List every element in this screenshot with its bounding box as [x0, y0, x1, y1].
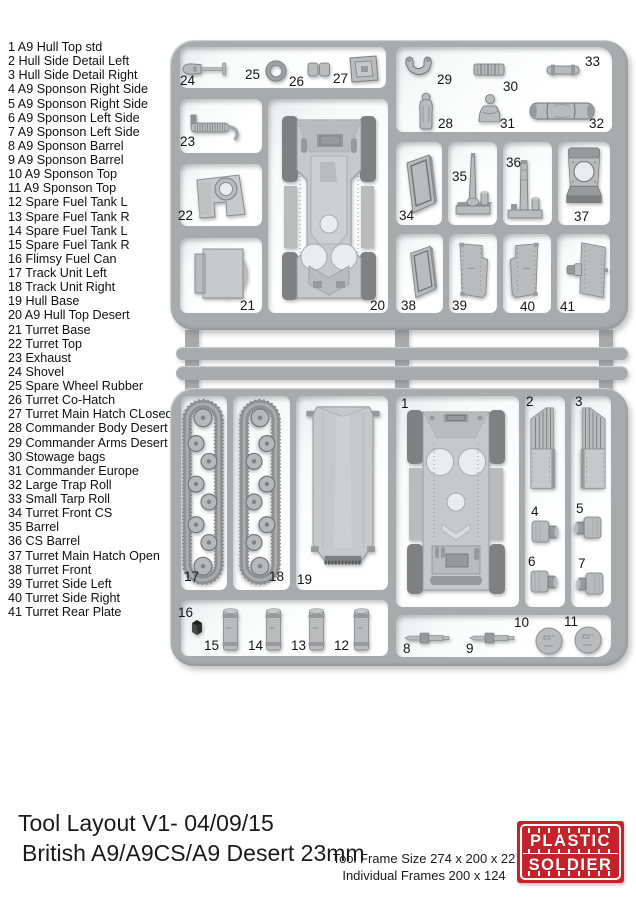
part-38-graphic [407, 243, 439, 301]
part-number-14: 14 [248, 639, 263, 653]
part-number-6: 6 [528, 555, 536, 569]
part-number-5: 5 [576, 502, 584, 516]
part-number-21: 21 [240, 299, 255, 313]
parts-list-item: 1 A9 Hull Top std [8, 40, 173, 54]
part-number-18: 18 [269, 570, 284, 584]
part-number-34: 34 [399, 209, 414, 223]
part-20-graphic [280, 108, 378, 306]
part-number-28: 28 [438, 117, 453, 131]
part-8-graphic [404, 631, 450, 645]
parts-list-item: 24 Shovel [8, 365, 173, 379]
part-number-38: 38 [401, 299, 416, 313]
parts-list-item: 14 Spare Fuel Tank L [8, 224, 173, 238]
parts-list-item: 15 Spare Fuel Tank R [8, 238, 173, 252]
part-number-11: 11 [564, 615, 578, 629]
part-39-graphic [453, 241, 493, 303]
part-25-graphic [264, 60, 288, 82]
parts-list-item: 10 A9 Sponson Top [8, 167, 173, 181]
parts-list-item: 40 Turret Side Right [8, 591, 173, 605]
part-number-39: 39 [452, 299, 467, 313]
part-5-graphic [574, 516, 602, 540]
parts-list-item: 3 Hull Side Detail Right [8, 68, 173, 82]
part-29-graphic [404, 54, 434, 80]
part-40-graphic [505, 241, 545, 303]
part-18-graphic [238, 399, 282, 585]
parts-list-item: 35 Barrel [8, 520, 173, 534]
part-number-10: 10 [514, 616, 529, 630]
part-number-8: 8 [403, 642, 411, 656]
plastic-soldier-logo: PLASTIC SOLDIER [517, 821, 624, 883]
part-number-23: 23 [180, 135, 195, 149]
parts-list-item: 36 CS Barrel [8, 534, 173, 548]
parts-list-item: 6 A9 Sponson Left Side [8, 111, 173, 125]
part-number-30: 30 [503, 80, 518, 94]
part-7-graphic [576, 572, 604, 596]
part-number-19: 19 [297, 573, 312, 587]
part-31-graphic [475, 94, 503, 122]
part-41-graphic [565, 241, 611, 303]
part-number-2: 2 [526, 395, 534, 409]
parts-list-item: 2 Hull Side Detail Left [8, 54, 173, 68]
part-number-25: 25 [245, 68, 260, 82]
part-number-36: 36 [506, 156, 521, 170]
tool-layout-sheet: 1 A9 Hull Top std2 Hull Side Detail Left… [0, 0, 636, 900]
runner-bar-bottom [176, 366, 628, 380]
parts-list-item: 8 A9 Sponson Barrel [8, 139, 173, 153]
parts-list-item: 31 Commander Europe [8, 464, 173, 478]
parts-list-item: 20 A9 Hull Top Desert [8, 308, 173, 322]
runner-stub-left [185, 330, 199, 394]
part-number-13: 13 [291, 639, 306, 653]
part-26-graphic [307, 62, 331, 77]
part-number-3: 3 [575, 395, 583, 409]
part-number-17: 17 [184, 570, 199, 584]
parts-list-item: 39 Turret Side Left [8, 577, 173, 591]
footer-title-line2: British A9/A9CS/A9 Desert 23mm [22, 840, 365, 866]
part-17-graphic [181, 399, 225, 585]
part-11-graphic [574, 626, 602, 654]
part-12-graphic [353, 607, 370, 653]
parts-list-item: 18 Track Unit Right [8, 280, 173, 294]
part-30-graphic [473, 62, 505, 77]
parts-list-item: 34 Turret Front CS [8, 506, 173, 520]
part-10-graphic [535, 627, 563, 655]
part-number-40: 40 [520, 300, 535, 314]
part-number-29: 29 [437, 73, 452, 87]
part-number-31: 31 [500, 117, 515, 131]
part-13-graphic [308, 607, 325, 653]
parts-list-item: 21 Turret Base [8, 323, 173, 337]
runner-stub-right [599, 330, 613, 394]
parts-list-item: 17 Track Unit Left [8, 266, 173, 280]
parts-list: 1 A9 Hull Top std2 Hull Side Detail Left… [8, 40, 173, 619]
part-number-4: 4 [531, 505, 539, 519]
part-15-graphic [222, 607, 239, 653]
part-33-graphic [545, 63, 581, 77]
parts-list-item: 7 A9 Sponson Left Side [8, 125, 173, 139]
part-21-graphic [191, 247, 249, 301]
part-number-24: 24 [180, 74, 195, 88]
part-number-33: 33 [585, 55, 600, 69]
parts-list-item: 37 Turret Main Hatch Open [8, 549, 173, 563]
parts-list-item: 25 Spare Wheel Rubber [8, 379, 173, 393]
part-number-32: 32 [589, 117, 604, 131]
parts-list-item: 13 Spare Fuel Tank R [8, 210, 173, 224]
parts-list-item: 38 Turret Front [8, 563, 173, 577]
part-19-graphic [300, 403, 386, 581]
individual-frames-text: Individual Frames 200 x 124 [330, 869, 518, 882]
parts-list-item: 4 A9 Sponson Right Side [8, 82, 173, 96]
parts-list-item: 9 A9 Sponson Barrel [8, 153, 173, 167]
part-34-graphic [403, 153, 439, 215]
part-number-27: 27 [333, 72, 348, 86]
logo-word-plastic: PLASTIC [522, 833, 619, 850]
parts-list-item: 32 Large Trap Roll [8, 478, 173, 492]
part-number-35: 35 [452, 170, 467, 184]
part-2-graphic [528, 406, 558, 492]
part-number-37: 37 [574, 210, 589, 224]
part-number-12: 12 [334, 639, 349, 653]
parts-list-item: 28 Commander Body Desert [8, 421, 173, 435]
parts-list-item: 27 Turret Main Hatch CLosed [8, 407, 173, 421]
part-number-1: 1 [401, 397, 409, 411]
part-number-16: 16 [178, 606, 193, 620]
parts-list-item: 33 Small Tarp Roll [8, 492, 173, 506]
part-28-graphic [416, 92, 436, 130]
parts-list-item: 41 Turret Rear Plate [8, 605, 173, 619]
part-1-graphic [404, 406, 508, 596]
part-number-15: 15 [204, 639, 219, 653]
part-number-20: 20 [370, 299, 385, 313]
runner-bar-top [176, 347, 628, 360]
logo-word-soldier: SOLDIER [522, 857, 619, 874]
parts-list-item: 11 A9 Sponson Top [8, 181, 173, 195]
parts-list-item: 5 A9 Sponson Right Side [8, 97, 173, 111]
parts-list-item: 16 Flimsy Fuel Can [8, 252, 173, 266]
part-4-graphic [531, 520, 559, 544]
parts-list-item: 26 Turret Co-Hatch [8, 393, 173, 407]
logo-inner-border: PLASTIC SOLDIER [520, 824, 621, 880]
tool-frame-size-text: Tool Frame Size 274 x 200 x 22 [330, 852, 518, 865]
part-6-graphic [530, 570, 558, 594]
part-16-graphic [190, 618, 204, 636]
part-37-graphic [563, 146, 605, 210]
parts-list-item: 19 Hull Base [8, 294, 173, 308]
parts-list-item: 23 Exhaust [8, 351, 173, 365]
part-35-graphic [454, 152, 494, 220]
part-number-41: 41 [560, 300, 575, 314]
runner-stub-middle [395, 330, 409, 394]
part-22-graphic [193, 172, 249, 222]
part-number-9: 9 [466, 642, 474, 656]
part-number-7: 7 [578, 557, 586, 571]
parts-list-item: 22 Turret Top [8, 337, 173, 351]
footer-title-line1: Tool Layout V1- 04/09/15 [18, 810, 274, 836]
parts-list-item: 30 Stowage bags [8, 450, 173, 464]
part-32-graphic [528, 99, 596, 123]
part-3-graphic [578, 406, 608, 492]
part-14-graphic [265, 607, 282, 653]
parts-list-item: 29 Commander Arms Desert [8, 436, 173, 450]
parts-list-item: 12 Spare Fuel Tank L [8, 195, 173, 209]
part-27-graphic [349, 55, 379, 83]
part-number-26: 26 [289, 75, 304, 89]
part-number-22: 22 [178, 209, 193, 223]
part-9-graphic [469, 631, 515, 645]
